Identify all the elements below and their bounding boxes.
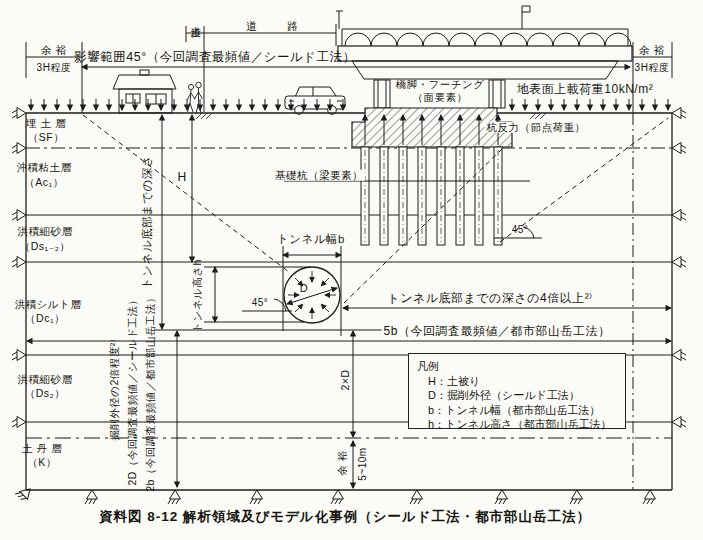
pile-reaction-label: 杭反力（節点荷重）: [485, 122, 588, 133]
layer-ds2-code: （Ds₂）: [25, 388, 65, 399]
bottom-margin-value: 5~10m: [358, 447, 368, 480]
piles: [361, 147, 502, 245]
flag-post-icon: [522, 6, 530, 29]
bottom-margin-label: 余 裕: [337, 450, 348, 475]
pier-label-line2: （面要素）: [413, 92, 468, 103]
car: [285, 87, 345, 114]
margin-right-value: 3H程度: [635, 63, 670, 73]
surface-load-arrows: [31, 99, 668, 110]
legend-item-h: h：トンネル高さ（都市部山岳工法）: [428, 417, 617, 432]
tunnel-bottom-depth-label: トンネル底部までの深さ: [142, 155, 154, 289]
diameter-label: D: [300, 283, 308, 294]
two-D-label: 2×D: [340, 369, 351, 390]
legend-title: 凡例: [417, 359, 617, 374]
layer-ac1-name: 沖積粘土層: [17, 162, 72, 173]
layer-k-name: 土 丹 層: [22, 443, 62, 454]
surcharge-label: 地表面上載荷重10kN/m²: [517, 83, 653, 95]
margin-left-label: 余 裕: [41, 45, 68, 56]
legend-item-H: H：土被り: [428, 374, 617, 389]
tunnel-height-label: トンネル高さh: [192, 259, 203, 333]
foundation-pile-label: 基礎杭（梁要素）: [273, 170, 365, 181]
layer-dc1-name: 洪積シルト層: [15, 299, 82, 310]
pier-label-line1: 橋脚・フーチング: [396, 79, 485, 90]
legend-box: 凡例 H：土被り D：掘削外径（シールド工法） b：トンネル幅（都市部山岳工法）…: [408, 353, 626, 429]
angle-right-label: 45°: [512, 225, 529, 235]
road-label: 道路: [246, 21, 328, 32]
excavation-2x-label: 掘削外径の2倍程度²⁾: [109, 339, 120, 441]
influence-range-label: 影響範囲45°（今回調査最頻値／シールド工法）: [74, 51, 355, 64]
angle-left-label: 45°: [252, 298, 269, 308]
bottom-supports: [15, 484, 655, 504]
dim-5b-label: 5b（今回調査最頻値／都市部山岳工法）: [382, 325, 613, 337]
dim-2D-label: 2D（今回調査最頻値／シールド工法）: [127, 294, 138, 485]
margin-right-label: 余 裕: [639, 45, 666, 56]
tunnel-width-label: トンネル幅b: [277, 234, 345, 246]
dim-2b-label: 2b（今回調査最頻値／都市部山岳工法）: [145, 292, 156, 492]
sidewalk-label: 歩道: [191, 18, 202, 20]
legend-item-D: D：掘削外径（シールド工法）: [428, 388, 617, 403]
layer-k-code: （K）: [27, 457, 57, 468]
tunnel: [284, 267, 340, 323]
layer-fill-name: 埋 土 層: [26, 118, 66, 129]
figure-caption: 資料図 8-12 解析領域及びモデル化事例（シールド工法・都市部山岳工法）: [99, 508, 591, 526]
railing-post-icon: [336, 11, 343, 29]
layer-ds2-name: 洪積細砂層: [18, 374, 73, 385]
layer-ac1-code: （Ac₁）: [24, 177, 63, 188]
analysis-model-diagram: 影響範囲45°（今回調査最頻値／シールド工法） 余 裕 3H程度 余 裕 3H程…: [0, 0, 703, 540]
margin-left-value: 3H程度: [37, 63, 72, 73]
cover-depth-label: H: [177, 171, 186, 183]
diagram-canvas: [0, 0, 703, 540]
right-rollers: [672, 108, 686, 428]
layer-ds12-name: 洪積細砂層: [18, 226, 73, 237]
legend-item-b: b：トンネル幅（都市部山岳工法）: [428, 403, 617, 418]
layer-ds12-code: （Ds₁₋₂）: [20, 241, 71, 252]
depth-4x-label: トンネル底部までの深さの4倍以上²⁾: [385, 292, 594, 304]
layer-dc1-code: （Dc₁）: [25, 313, 65, 324]
layer-fill-code: （SF）: [28, 132, 64, 143]
